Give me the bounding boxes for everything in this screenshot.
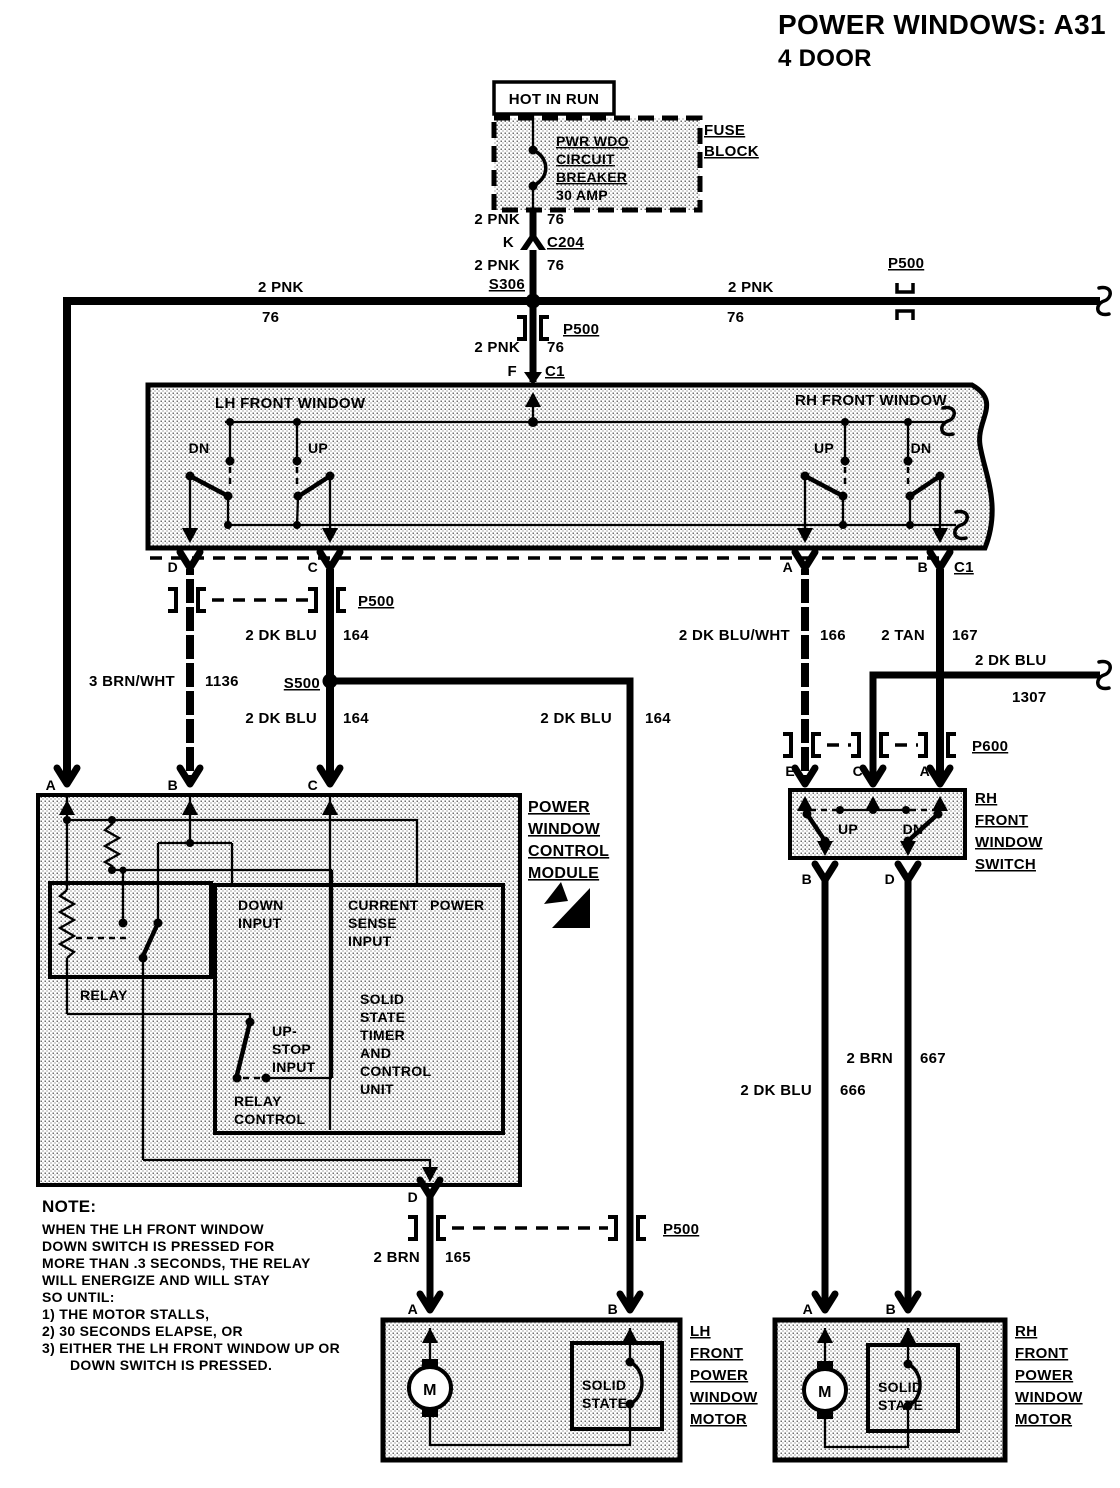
pin-letter: B [802, 871, 812, 887]
rh-front-power-window-motor: A B M SOLID STATE RH FRONT POWER WINDOW … [775, 1294, 1083, 1460]
connector-label-c204: C204 [547, 234, 584, 251]
note-line: WILL ENERGIZE AND WILL STAY [42, 1272, 270, 1288]
pin-letter: B [918, 559, 928, 575]
power-input-label: POWER [430, 897, 484, 913]
down-input-label-2: INPUT [238, 915, 282, 931]
sst-label-3: TIMER [360, 1027, 405, 1043]
pin-letter: C [308, 777, 318, 793]
wire-color-label: 2 DK BLU [975, 652, 1047, 669]
wire-color-label: 2 PNK [474, 339, 520, 356]
connector-label-p500: P500 [888, 255, 924, 272]
rh-switch-label-3: WINDOW [975, 834, 1043, 851]
lh-motor-label-1: LH [690, 1323, 711, 1340]
lh-motor-label-5: MOTOR [690, 1411, 747, 1428]
circuit-number: 1136 [205, 673, 239, 690]
circuit-number: 165 [445, 1249, 471, 1266]
note-line: MORE THAN .3 SECONDS, THE RELAY [42, 1255, 311, 1271]
lh-motor-label-3: POWER [690, 1367, 748, 1384]
relay-label: RELAY [80, 987, 128, 1003]
motor-m-label: M [423, 1382, 437, 1399]
circuit-number: 164 [343, 710, 369, 727]
pin-letter: D [408, 1189, 418, 1205]
fuse-block-label-2: BLOCK [704, 143, 759, 160]
wire-color-label: 2 DK BLU [245, 710, 317, 727]
circuit-number: 167 [952, 627, 978, 644]
pin-terminal [180, 552, 200, 568]
note-line: SO UNTIL: [42, 1289, 115, 1305]
dn-label: DN [189, 440, 210, 456]
connector-p600: P600 [783, 734, 1008, 756]
pin-letter: B [608, 1301, 618, 1317]
note-line: DOWN SWITCH IS PRESSED. [70, 1357, 272, 1373]
rh-front-window-label: RH FRONT WINDOW [795, 392, 948, 409]
sst-label-4: AND [360, 1045, 391, 1061]
pin-letter: A [408, 1301, 418, 1317]
circuit-number: 666 [840, 1082, 866, 1099]
pin-letter: A [46, 777, 56, 793]
power-window-control-module: A B C [38, 768, 609, 1185]
front-window-switch-assembly: LH FRONT WINDOW RH FRONT WINDOW DN UP [148, 385, 992, 576]
circuit-number: 76 [727, 309, 744, 326]
page-title: POWER WINDOWS: A31 4 DOOR [778, 9, 1106, 72]
note-block: NOTE: WHEN THE LH FRONT WINDOW DOWN SWIT… [42, 1197, 340, 1373]
up-label: UP [308, 440, 328, 456]
title-line2: 4 DOOR [778, 45, 872, 72]
lh-front-window-label: LH FRONT WINDOW [215, 395, 366, 412]
breaker-label-3: BREAKER [556, 169, 627, 185]
rh-motor-wires: 2 BRN 667 2 DK BLU 666 [740, 880, 946, 1310]
connector-p500-door: P500 [168, 589, 394, 611]
pin-letter: C [308, 559, 318, 575]
pin-letter: A [783, 559, 793, 575]
module-label-4: MODULE [528, 865, 599, 882]
solid-state-label-1: SOLID [878, 1379, 922, 1395]
note-line: 2) 30 SECONDS ELAPSE, OR [42, 1323, 243, 1339]
splice-label-s306: S306 [489, 276, 525, 293]
connector-label-c1: C1 [545, 363, 565, 380]
rh-motor-label-1: RH [1015, 1323, 1037, 1340]
pin-terminal [898, 864, 918, 880]
up-label: UP [838, 821, 858, 837]
up-label: UP [814, 440, 834, 456]
note-line: DOWN SWITCH IS PRESSED FOR [42, 1238, 275, 1254]
sst-label-1: SOLID [360, 991, 404, 1007]
wire-color-label: 3 BRN/WHT [89, 673, 175, 690]
sst-label-5: CONTROL [360, 1063, 431, 1079]
circuit-number: 166 [820, 627, 846, 644]
wire-color-label: 2 PNK [474, 257, 520, 274]
dn-label: DN [911, 440, 932, 456]
wire-color-label: 2 PNK [258, 279, 304, 296]
breaker-label-1: PWR WDO [556, 133, 629, 149]
esd-warning-icon [544, 882, 590, 928]
sst-label-2: STATE [360, 1009, 405, 1025]
note-line: 1) THE MOTOR STALLS, [42, 1306, 209, 1322]
connector-p500-lh-motor: P500 [408, 1217, 699, 1239]
circuit-number: 1307 [1012, 689, 1047, 706]
pin-terminal [815, 864, 835, 880]
breaker-rating: 30 AMP [556, 187, 608, 203]
pin-letter: D [168, 559, 178, 575]
pin-letter: B [168, 777, 178, 793]
rh-switch-label-2: FRONT [975, 812, 1028, 829]
up-stop-label-1: UP- [272, 1023, 297, 1039]
down-input-label-1: DOWN [238, 897, 284, 913]
rh-motor-label-3: POWER [1015, 1367, 1073, 1384]
current-sense-label-3: INPUT [348, 933, 392, 949]
module-label-1: POWER [528, 799, 590, 816]
connector-p500-feed: P500 [517, 317, 599, 339]
pin-terminal [795, 552, 815, 568]
solid-state-label-1: SOLID [582, 1377, 626, 1393]
current-sense-label-2: SENSE [348, 915, 397, 931]
wire-dkblu-1307 [873, 675, 1100, 784]
wiring-diagram: POWER WINDOWS: A31 4 DOOR HOT IN RUN PWR… [0, 0, 1120, 1488]
wire-color-label: 2 DK BLU [245, 627, 317, 644]
pin-letter: D [885, 871, 895, 887]
rh-switch-label-4: SWITCH [975, 856, 1036, 873]
rh-switch-label-1: RH [975, 790, 997, 807]
pin-letter: K [503, 234, 514, 251]
note-line: WHEN THE LH FRONT WINDOW [42, 1221, 264, 1237]
wire-color-label: 2 PNK [474, 211, 520, 228]
connector-c204-symbol [520, 231, 546, 250]
rh-front-window-switch[interactable]: UP DN RH FRONT WINDOW SWITCH B D [790, 768, 1043, 887]
pin-terminal [320, 552, 340, 568]
circuit-number: 164 [645, 710, 671, 727]
circuit-number: 76 [547, 211, 564, 228]
solid-state-label-2: STATE [582, 1395, 627, 1411]
wire-color-label: 2 DK BLU [740, 1082, 812, 1099]
connector-label-p500: P500 [358, 593, 394, 610]
circuit-number: 76 [262, 309, 279, 326]
note-line: 3) EITHER THE LH FRONT WINDOW UP OR [42, 1340, 340, 1356]
fuse-block-label-1: FUSE [704, 122, 745, 139]
circuit-number: 164 [343, 627, 369, 644]
lh-motor-label-2: FRONT [690, 1345, 743, 1362]
lh-front-power-window-motor: A B M SOLID STATE LH FRONT POWER WINDOW … [383, 1294, 758, 1460]
wire-color-label: 2 DK BLU [540, 710, 612, 727]
connector-label-p600: P600 [972, 738, 1008, 755]
connector-label-c1: C1 [954, 559, 974, 576]
wire-color-label: 2 TAN [881, 627, 925, 644]
breaker-label-2: CIRCUIT [556, 151, 615, 167]
module-to-lh-motor: D P500 2 BRN 165 [373, 1180, 699, 1310]
connector-p500-bus: P500 [888, 255, 924, 320]
rh-motor-label-2: FRONT [1015, 1345, 1068, 1362]
hot-in-run-label: HOT IN RUN [509, 91, 600, 108]
connector-label-p500: P500 [663, 1221, 699, 1238]
splice-label-s500: S500 [284, 675, 320, 692]
wire-color-label: 2 BRN [373, 1249, 420, 1266]
circuit-number: 76 [547, 257, 564, 274]
relay-control-label-1: RELAY [234, 1093, 282, 1109]
splice-dot-s306 [526, 294, 541, 309]
pin-terminal [930, 552, 950, 568]
service-manual-page: POWER WINDOWS: A31 4 DOOR HOT IN RUN PWR… [0, 0, 1120, 1488]
module-label-2: WINDOW [528, 821, 601, 838]
wire-color-label: 2 BRN [846, 1050, 893, 1067]
lh-motor-label-4: WINDOW [690, 1389, 758, 1406]
rh-motor-label-5: MOTOR [1015, 1411, 1072, 1428]
circuit-number: 76 [547, 339, 564, 356]
current-sense-label-1: CURRENT [348, 897, 419, 913]
pin-letter: F [508, 363, 517, 380]
pin-letter: B [886, 1301, 896, 1317]
up-stop-label-2: STOP [272, 1041, 311, 1057]
sst-label-6: UNIT [360, 1081, 394, 1097]
pin-letter: A [803, 1301, 813, 1317]
note-heading: NOTE: [42, 1197, 96, 1216]
wire-color-label: 2 DK BLU/WHT [679, 627, 790, 644]
rh-motor-label-4: WINDOW [1015, 1389, 1083, 1406]
right-harness: 2 DK BLU/WHT 166 2 TAN 167 2 DK BLU 1307… [679, 569, 1110, 784]
title-line1: POWER WINDOWS: A31 [778, 9, 1106, 40]
connector-label-p500: P500 [563, 321, 599, 338]
module-label-3: CONTROL [528, 843, 609, 860]
wire-color-label: 2 PNK [728, 279, 774, 296]
relay-control-label-2: CONTROL [234, 1111, 305, 1127]
circuit-number: 667 [920, 1050, 946, 1067]
up-stop-label-3: INPUT [272, 1059, 316, 1075]
motor-m-label: M [818, 1384, 832, 1401]
